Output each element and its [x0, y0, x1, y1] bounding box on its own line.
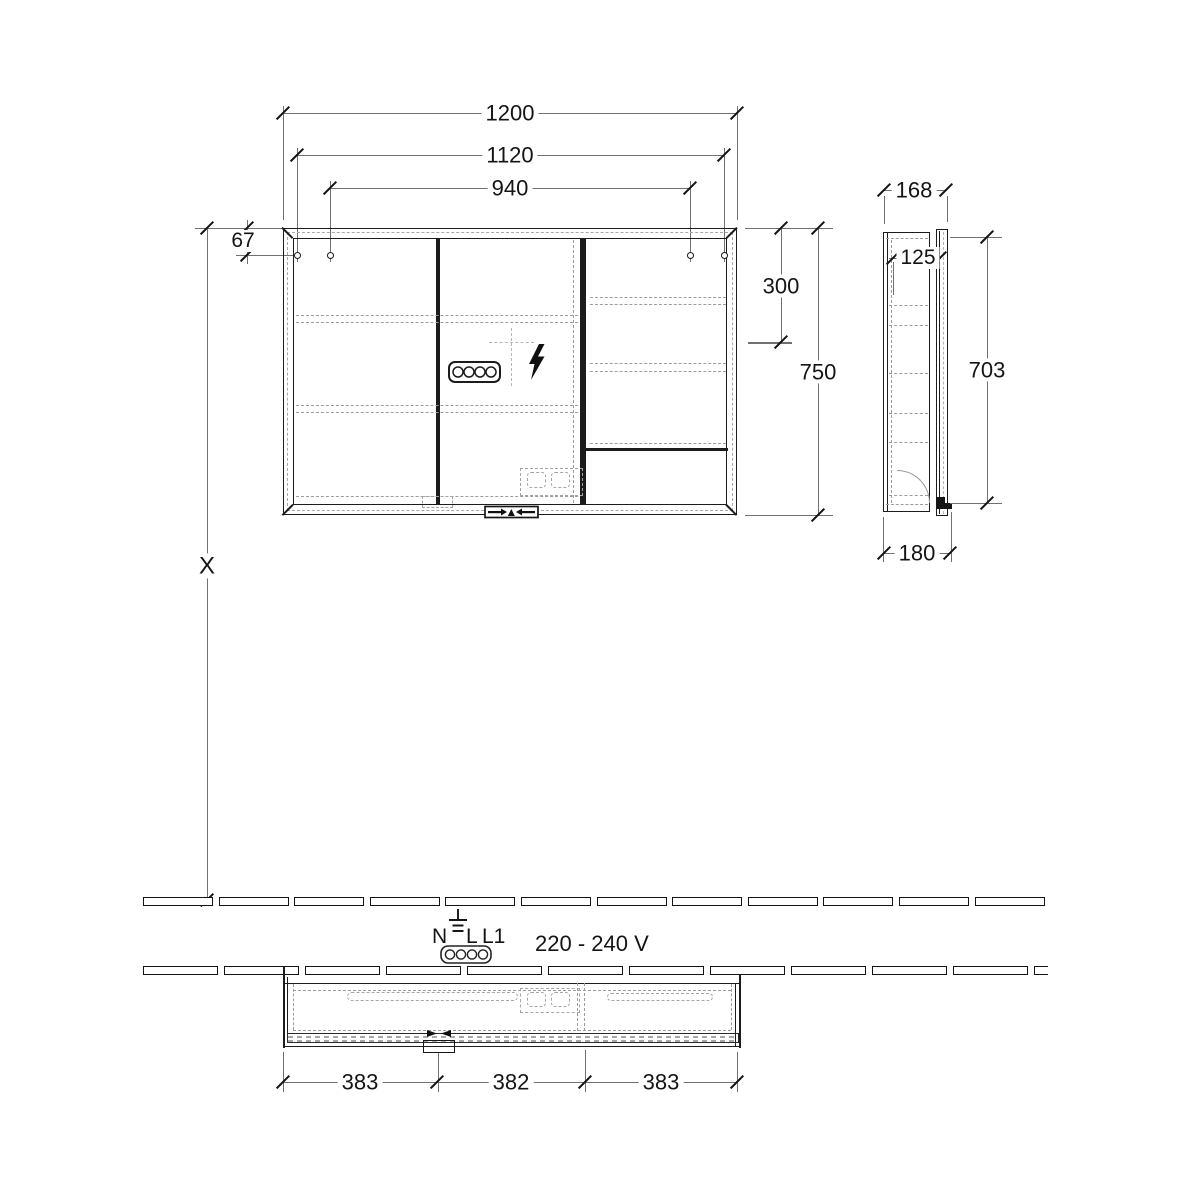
wall-tile	[823, 897, 893, 906]
wall-tile	[548, 966, 623, 975]
wall-tile	[386, 966, 461, 975]
ext-line	[951, 512, 952, 562]
shelf-hidden-line	[590, 297, 726, 298]
ext-line	[893, 262, 894, 295]
shelf-hidden-line	[590, 304, 726, 305]
open-shelf-line	[586, 448, 728, 451]
ext-line	[950, 503, 1002, 504]
connector-icon	[440, 945, 492, 964]
wall-tile-row	[143, 966, 1048, 975]
ext-line	[585, 1050, 586, 1092]
mounting-hole	[294, 252, 301, 259]
lightning-bolt-icon	[527, 343, 547, 381]
shelf-hidden-line	[889, 442, 928, 443]
wall-tile	[370, 897, 440, 906]
plan-top-line	[283, 983, 740, 984]
earth-ground-icon	[448, 908, 468, 934]
mirror-hatch-line	[943, 232, 944, 514]
shelf-hidden-line	[889, 325, 928, 326]
plan-right-edge	[739, 974, 741, 1048]
plan-bottom-line	[283, 1046, 740, 1047]
hidden-line	[886, 238, 928, 239]
socket-icon	[448, 361, 501, 383]
hidden-door-edge	[573, 240, 574, 503]
wall-tile	[445, 897, 515, 906]
wall-tile	[629, 966, 704, 975]
dim-label-height-overall: 750	[796, 360, 841, 383]
dim-label-segment-left: 383	[338, 1070, 383, 1093]
hidden-door-divider	[584, 983, 585, 1031]
connector-arrows-icon	[423, 1029, 455, 1040]
ext-line	[745, 515, 833, 516]
ext-line	[737, 106, 738, 220]
hidden-line	[891, 240, 892, 503]
wall-tile	[899, 897, 969, 906]
wall-tile	[143, 897, 213, 906]
ext-line	[283, 106, 284, 220]
hidden-socket-outlet	[551, 472, 570, 488]
shelf-hidden-line	[590, 443, 726, 444]
side-view-mirror-door	[936, 229, 948, 516]
ext-line	[947, 196, 948, 222]
shelf-hidden-line	[296, 405, 578, 406]
plan-mirror-doors	[287, 1033, 739, 1043]
dim-label-mounting-height: X	[195, 553, 219, 578]
ext-line	[884, 196, 885, 224]
mirror-door-inner-line	[939, 231, 940, 514]
terminal-n-label: N	[432, 926, 447, 947]
side-back-panel-line	[887, 233, 888, 511]
hidden-handle-box	[422, 496, 453, 508]
wall-tile	[143, 966, 218, 975]
plan-left-edge	[283, 966, 285, 1048]
terminal-l-label: L	[466, 926, 478, 947]
terminal-l1-label: L1	[482, 926, 505, 947]
shelf-hidden-line	[296, 322, 578, 323]
wall-tile	[975, 897, 1045, 906]
shelf-hidden-line	[889, 305, 928, 306]
wall-tile	[219, 897, 289, 906]
dim-label-depth-with-door: 180	[895, 541, 940, 564]
hidden-line	[886, 504, 928, 505]
hidden-line	[731, 984, 732, 1030]
hidden-line	[293, 984, 294, 1030]
shelf-hidden-line	[296, 412, 578, 413]
ext-line	[745, 228, 833, 229]
wall-tile	[710, 966, 785, 975]
hidden-socket-outlet	[527, 472, 546, 488]
door-divider-right	[580, 238, 586, 505]
wall-tile	[294, 897, 364, 906]
dim-label-mounting-outer: 1120	[482, 143, 537, 166]
ext-line	[283, 1052, 284, 1092]
dim-label-mounting-inner: 940	[488, 176, 533, 199]
dim-label-upper-zone: 300	[759, 274, 804, 297]
dim-label-depth-overall: 168	[892, 178, 937, 201]
wall-tile	[791, 966, 866, 975]
wall-tile	[1034, 966, 1048, 975]
center-mark	[511, 328, 512, 386]
hidden-line	[293, 1030, 731, 1031]
shelf-hidden-line	[296, 315, 578, 316]
dim-label-door-height: 703	[965, 358, 1010, 381]
wall-tile	[597, 897, 667, 906]
hidden-door-divider	[577, 983, 578, 1031]
shelf-hidden-line	[590, 363, 726, 364]
wall-tile	[467, 966, 542, 975]
ext-line	[737, 1052, 738, 1092]
shelf-hidden-line	[889, 373, 928, 374]
shelf-hidden-line	[590, 371, 726, 372]
dim-label-hole-offset: 67	[227, 230, 258, 252]
wall-tile	[305, 966, 380, 975]
led-strip-hidden	[347, 992, 518, 1001]
hidden-socket-outlet	[551, 992, 570, 1007]
mounting-hole	[721, 252, 728, 259]
switch-indicator-icon	[484, 504, 540, 520]
voltage-label: 220 - 240 V	[535, 933, 649, 955]
wall-tile	[521, 897, 591, 906]
dim-label-width-overall: 1200	[482, 101, 539, 124]
dim-label-inner-depth: 125	[896, 247, 939, 269]
ext-line	[748, 342, 792, 344]
mains-connection-box	[423, 1040, 455, 1053]
technical-drawing-canvas: 1200 1120 940 67 X 300 750	[0, 0, 1200, 1200]
ext-line	[950, 237, 1002, 238]
wall-tile	[953, 966, 1028, 975]
dim-label-segment-right: 383	[639, 1070, 684, 1093]
hidden-line	[293, 990, 731, 991]
mounting-hole	[687, 252, 694, 259]
door-divider-left	[436, 238, 440, 505]
wall-tile	[748, 897, 818, 906]
mounting-hole	[327, 252, 334, 259]
wall-tile-row	[143, 897, 1048, 906]
wall-tile	[224, 966, 299, 975]
shelf-hidden-line	[889, 413, 928, 414]
wall-tile	[672, 897, 742, 906]
hidden-socket-outlet	[527, 992, 546, 1007]
dim-label-segment-center: 382	[489, 1070, 534, 1093]
wall-tile	[872, 966, 947, 975]
led-strip-hidden	[607, 993, 713, 1001]
ext-line	[438, 1053, 439, 1092]
